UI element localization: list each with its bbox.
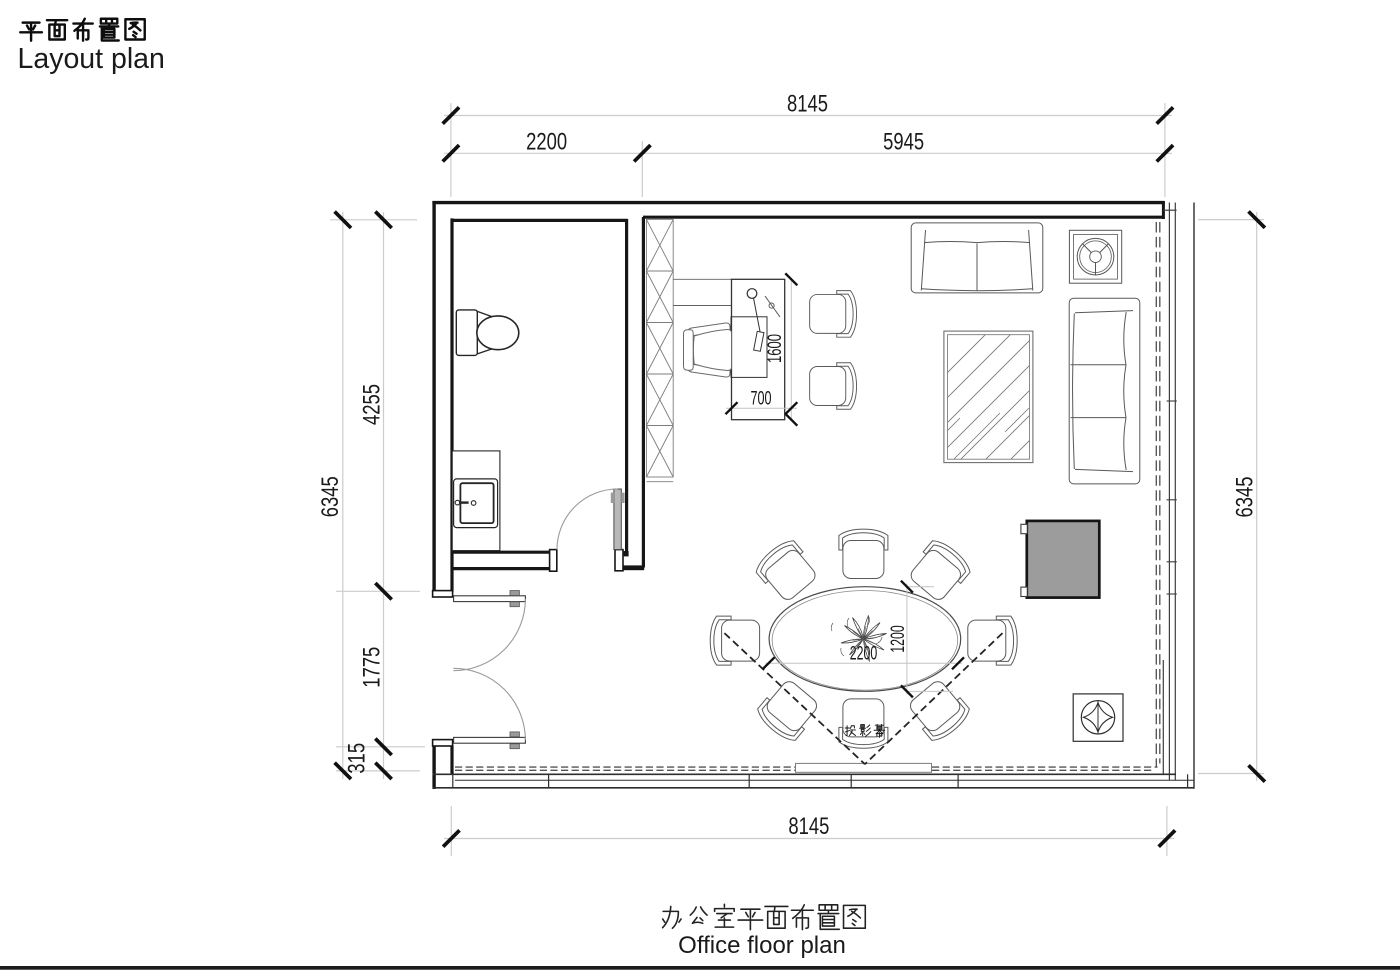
svg-text:6345: 6345 [1232,477,1259,518]
svg-text:5945: 5945 [883,129,924,156]
svg-text:1775: 1775 [359,647,386,688]
svg-text:1200: 1200 [888,625,909,653]
svg-text:8145: 8145 [787,91,828,118]
svg-text:4255: 4255 [359,384,386,425]
svg-text:700: 700 [751,389,772,410]
svg-text:6345: 6345 [317,476,344,517]
svg-text:315: 315 [344,743,371,774]
svg-text:8145: 8145 [788,813,829,840]
svg-text:Office floor plan: Office floor plan [678,932,846,959]
svg-text:Layout plan: Layout plan [18,43,165,75]
svg-text:2200: 2200 [526,129,567,156]
svg-text:2200: 2200 [850,644,878,665]
svg-text:1600: 1600 [765,334,786,363]
